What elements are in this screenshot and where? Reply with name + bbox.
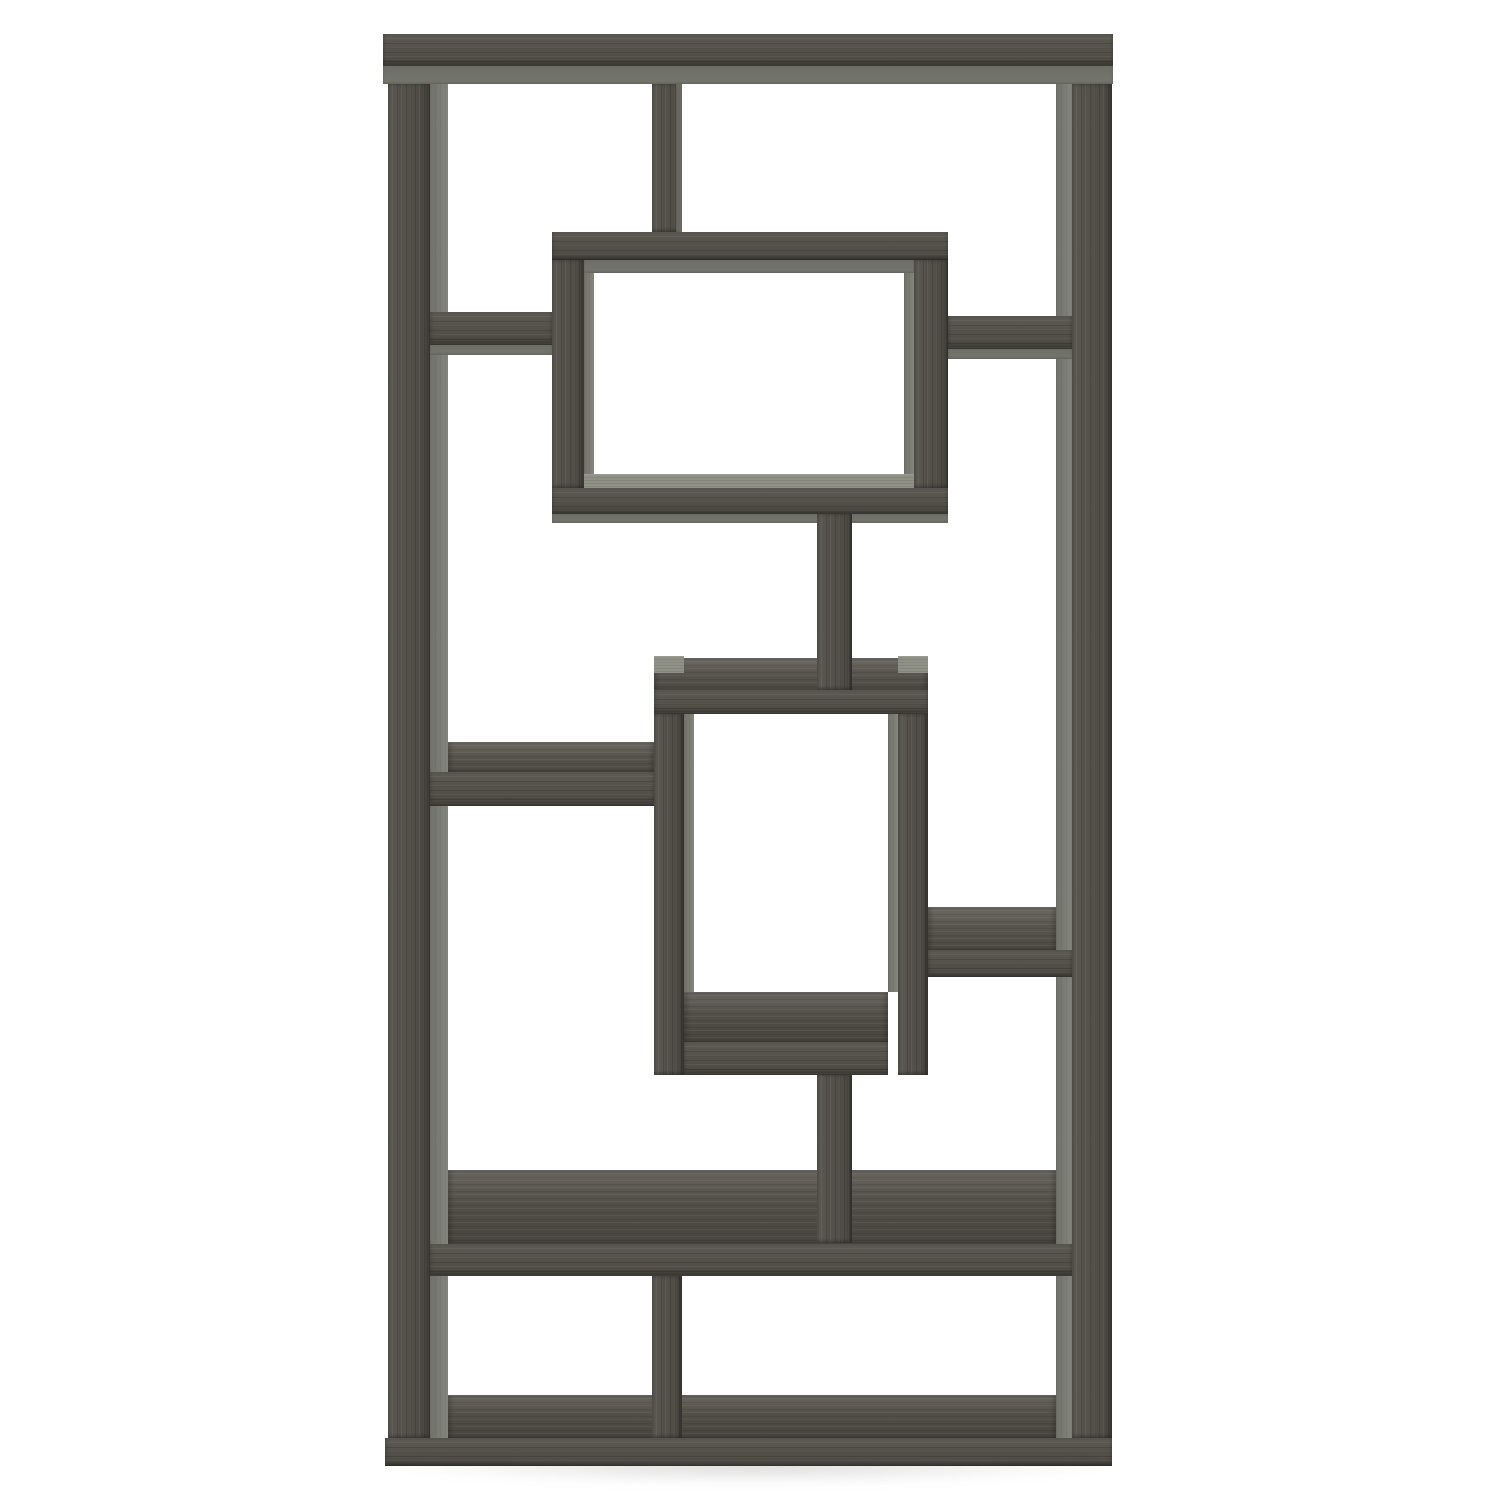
bookcase-product-photo: Product photograph of a tall rectangular… [0, 0, 1500, 1500]
right-stub-shelf [948, 316, 1072, 349]
right-side-panel [1072, 84, 1112, 1438]
middle-box-top-edge [654, 690, 928, 714]
floor-shadow [395, 1458, 1105, 1484]
upper-box-left-wall-inner-face [584, 273, 594, 474]
right-stub-shelf-underside [948, 349, 1072, 359]
lower-shelf-surface [448, 1170, 1056, 1244]
top-board [383, 34, 1113, 66]
right-mid-shelf-surface [928, 907, 1056, 950]
upper-box-right-wall [914, 260, 948, 488]
base-surface [448, 1395, 1056, 1438]
middle-box-left-wall-inner-face [684, 714, 694, 992]
middle-box-floor-surface [684, 992, 888, 1042]
top-board-underside [383, 66, 1113, 84]
middle-box-right-wall-inner-face [888, 714, 898, 992]
middle-box-left-wall [654, 714, 684, 1075]
upper-box-top [552, 232, 948, 260]
middle-box-left-end-cap [654, 656, 684, 673]
upper-box-bottom-inner-ledge [584, 474, 914, 488]
middle-box-floor-edge [684, 1042, 888, 1075]
upper-box-right-wall-inner-face [904, 273, 914, 474]
left-stub-shelf [430, 312, 552, 345]
left-mid-shelf-edge [430, 772, 654, 806]
left-side-panel-inner-face [430, 84, 448, 1438]
middle-box-right-wall [898, 714, 928, 1075]
middle-box-right-end-cap [898, 656, 928, 673]
upper-box-top-underside [584, 260, 914, 273]
upper-box-left-wall [552, 260, 584, 488]
bottom-center-divider [652, 1276, 682, 1438]
upper-connector-post [817, 514, 852, 690]
left-side-panel [388, 84, 430, 1438]
lower-shelf-edge [430, 1244, 1072, 1276]
middle-box-top-surface [654, 658, 928, 690]
right-side-panel-inner-face [1056, 84, 1072, 1438]
right-mid-shelf-edge [928, 950, 1072, 977]
lower-connector-post [817, 1075, 852, 1243]
upper-box-bottom-underside [552, 514, 948, 523]
upper-box-bottom [552, 488, 948, 514]
left-stub-shelf-underside [430, 345, 552, 355]
left-mid-shelf-surface [448, 742, 654, 772]
top-center-divider-inner-edge [676, 84, 682, 232]
